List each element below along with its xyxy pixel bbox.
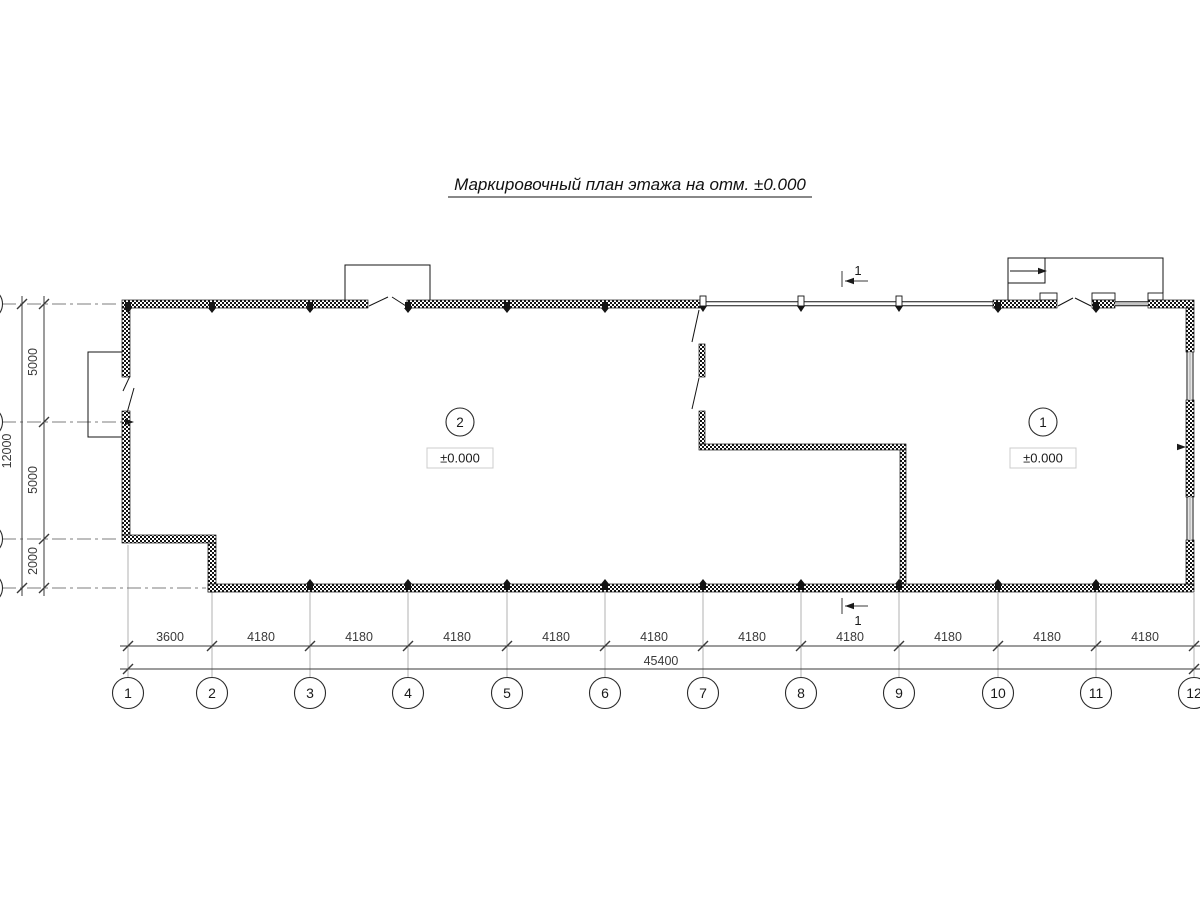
axis-number: 5 [503,685,511,701]
dim-total: 12000 [0,434,14,469]
wall-axis-arrows [125,419,1186,450]
ramp-direction-arrow-icon [1038,268,1047,274]
axis-number: 12 [1186,685,1200,701]
dim-value: 5000 [26,466,40,494]
dim-value: 4180 [247,630,275,644]
top-right-canopy [1008,258,1163,300]
axis-number: 10 [990,685,1006,701]
pier-outline [1092,293,1115,300]
dim-value: 4180 [345,630,373,644]
room-label-1: 1 ±0.000 [1010,408,1076,468]
pier-outline [1040,293,1057,300]
window [1189,352,1192,400]
window [1115,303,1148,306]
axis-number: 11 [1089,685,1104,701]
left-dimensions: 5000 5000 2000 12000 [0,289,49,604]
double-door-top-left [369,297,406,306]
light-wall-and-windows [700,302,1193,540]
room-number: 1 [1039,415,1047,430]
door-left-wall [123,376,134,413]
axis-number: 8 [797,685,805,701]
dim-value: 4180 [1033,630,1061,644]
dim-value: 5000 [26,348,40,376]
left-porch [88,352,122,437]
axis-number: 9 [895,685,903,701]
drawing-title-text: Маркировочный план этажа на отм. ±0.000 [454,175,806,194]
column-axis-bubbles: 1 2 3 4 5 6 7 8 9 10 11 12 [113,678,1200,709]
bottom-dimensions: 3600 4180 4180 4180 4180 4180 4180 4180 … [113,630,1200,709]
dim-value: 4180 [640,630,668,644]
elevation-value: ±0.000 [440,451,480,466]
section-mark-top: 1 [842,263,868,287]
axis-number: 7 [699,685,707,701]
double-door-top-right [1058,298,1091,306]
dim-value: 4180 [836,630,864,644]
entrance-canopies [88,258,1163,437]
dim-value: 3600 [156,630,184,644]
exterior-walls [122,300,1194,592]
top-left-canopy [345,265,430,300]
interior-walls [699,344,906,584]
floor-plan-drawing: Маркировочный план этажа на отм. ±0.000 [0,0,1200,900]
door-interior-1 [692,310,699,342]
dim-value: 2000 [26,547,40,575]
column-marks [124,296,1100,590]
axis-number: 6 [601,685,609,701]
dim-value: 4180 [738,630,766,644]
dim-value: 4180 [542,630,570,644]
section-arrow-icon [845,603,854,609]
section-label: 1 [854,263,861,278]
dim-value: 4180 [443,630,471,644]
dim-value: 4180 [1131,630,1159,644]
dim-total: 45400 [644,654,679,668]
dim-value: 4180 [934,630,962,644]
axis-number: 4 [404,685,412,701]
window [1189,497,1192,540]
door-interior-2 [692,378,699,409]
axis-number: 3 [306,685,314,701]
section-mark-bottom: 1 [842,598,868,628]
axis-number: 2 [208,685,216,701]
room-number: 2 [456,415,464,430]
door-swings [123,297,1091,413]
elevation-value: ±0.000 [1023,451,1063,466]
drawing-title: Маркировочный план этажа на отм. ±0.000 [448,175,812,197]
row-axis-arrow-icon [1177,444,1186,450]
axis-number: 1 [124,685,132,701]
section-label: 1 [854,613,861,628]
pier-outline [1148,293,1163,300]
row-center-lines [2,304,206,588]
floor-plan-sheet: Маркировочный план этажа на отм. ±0.000 [0,0,1200,900]
section-arrow-icon [845,278,854,284]
room-label-2: 2 ±0.000 [427,408,493,468]
